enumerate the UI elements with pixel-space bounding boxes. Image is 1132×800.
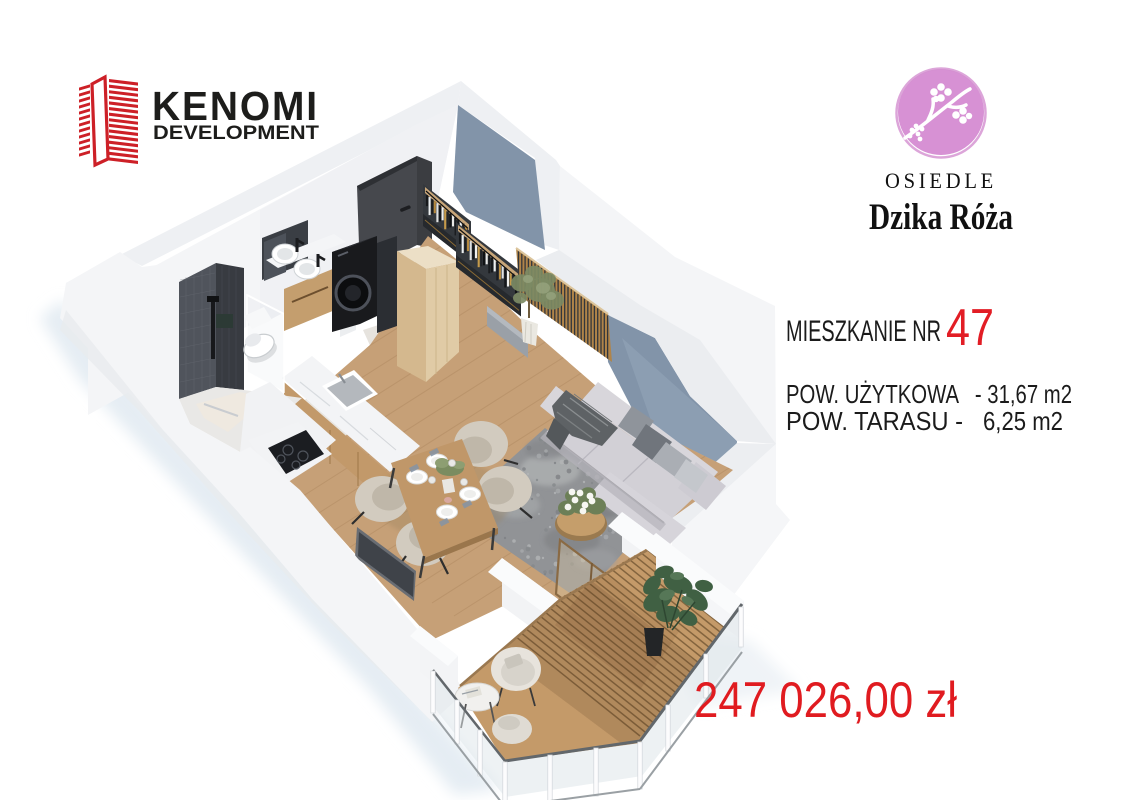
- svg-text:DEVELOPMENT: DEVELOPMENT: [153, 123, 319, 144]
- svg-text:247 026,00 zł: 247 026,00 zł: [694, 672, 957, 728]
- svg-text:OSIEDLE: OSIEDLE: [885, 168, 997, 193]
- svg-text:6,25 m2: 6,25 m2: [983, 406, 1063, 436]
- svg-text:POW. UŻYTKOWA - 31,67 m2: POW. UŻYTKOWA - 31,67 m2: [786, 379, 1072, 409]
- svg-text:POW. TARASU -: POW. TARASU -: [786, 406, 963, 436]
- svg-text:Dzika Róża: Dzika Róża: [869, 197, 1013, 238]
- svg-text:47: 47: [946, 299, 994, 357]
- svg-text:MIESZKANIE NR: MIESZKANIE NR: [786, 315, 941, 348]
